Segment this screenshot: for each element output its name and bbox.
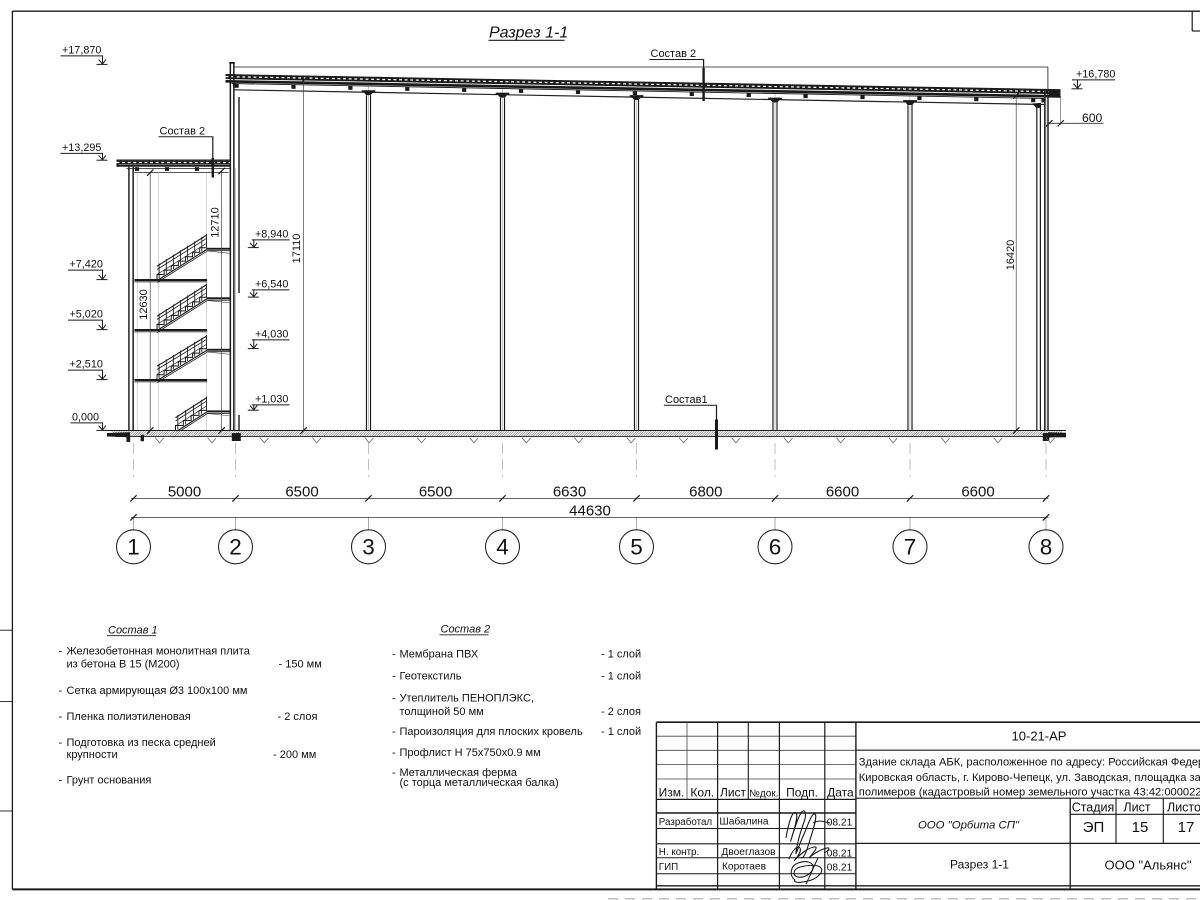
svg-text:- 1 слой: - 1 слой [601,726,641,738]
svg-text:0,000: 0,000 [72,411,99,423]
svg-text:Состав 1: Состав 1 [108,624,158,636]
svg-text:08.21: 08.21 [827,818,853,829]
svg-text:08.21: 08.21 [827,863,853,874]
svg-text:крупности: крупности [67,749,118,761]
svg-text:- 1 слой: - 1 слой [601,649,641,661]
svg-text:Геотекстиль: Геотекстиль [400,670,462,682]
svg-text:17110: 17110 [291,234,303,264]
svg-text:- 2 слоя: - 2 слоя [278,711,318,723]
svg-text:толщиной 50 мм: толщиной 50 мм [400,706,484,718]
svg-text:16420: 16420 [1005,240,1017,271]
svg-text:Стадия: Стадия [1072,801,1115,815]
svg-text:Н. контр.: Н. контр. [659,847,699,858]
svg-text:+16,780: +16,780 [1076,69,1115,81]
svg-text:4: 4 [496,534,509,559]
svg-text:Состав1: Состав1 [665,394,708,406]
svg-text:-: - [59,737,63,749]
svg-text:-: - [392,767,396,779]
svg-text:Железобетонная монолитная пли: Железобетонная монолитная плита [67,645,251,657]
svg-text:Шабалина: Шабалина [719,815,769,827]
svg-text:6500: 6500 [419,483,452,500]
svg-text:ООО "Альянс": ООО "Альянс" [1105,858,1192,873]
svg-text:-: - [392,726,396,738]
svg-text:7: 7 [904,534,917,559]
svg-text:Лист: Лист [720,785,747,799]
svg-text:- 200 мм: - 200 мм [273,749,316,761]
svg-text:-: - [392,649,396,661]
svg-text:+7,420: +7,420 [70,259,103,271]
svg-text:Кировская область, г. Кирово-Ч: Кировская область, г. Кирово-Чепецк, ул.… [859,772,1200,784]
svg-text:- 1 слой: - 1 слой [601,670,641,682]
svg-text:- 2 слоя: - 2 слоя [601,706,641,718]
svg-text:44630: 44630 [569,503,611,520]
svg-text:-: - [392,692,396,704]
svg-text:6: 6 [769,534,782,559]
svg-text:Утеплитель ПЕНОПЛЭКС,: Утеплитель ПЕНОПЛЭКС, [400,692,534,704]
svg-text:полимеров (кадастровый номер з: полимеров (кадастровый номер земельного … [859,787,1200,799]
svg-text:5: 5 [630,534,643,559]
svg-text:-: - [59,645,63,657]
svg-text:6500: 6500 [285,483,318,500]
svg-text:Состав 2: Состав 2 [441,623,491,635]
svg-text:ЭП: ЭП [1083,819,1105,836]
svg-text:6630: 6630 [553,483,586,500]
svg-text:Подп.: Подп. [786,785,818,799]
svg-text:Лист: Лист [1123,801,1150,815]
svg-text:6800: 6800 [689,483,722,500]
svg-text:Пароизоляция для плоских крове: Пароизоляция для плоских кровель [400,726,583,738]
svg-text:Разработал: Разработал [659,817,713,828]
svg-text:1: 1 [127,534,140,559]
svg-text:+17,870: +17,870 [62,44,101,56]
svg-text:+13,295: +13,295 [62,142,101,154]
svg-text:Грунт основания: Грунт основания [67,775,152,787]
svg-text:Листов: Листов [1167,801,1200,815]
svg-text:Кол.: Кол. [690,785,714,799]
svg-text:Сетка армирующая Ø3 100х100 мм: Сетка армирующая Ø3 100х100 мм [67,685,248,697]
svg-text:Профлист Н 75х750х0.9 мм: Профлист Н 75х750х0.9 мм [400,747,541,759]
svg-text:+4,030: +4,030 [255,328,288,340]
svg-text:5000: 5000 [168,483,201,500]
svg-text:-: - [392,670,396,682]
svg-text:Мембрана ПВХ: Мембрана ПВХ [400,649,479,661]
svg-text:-: - [59,775,63,787]
svg-text:Разрез 1-1: Разрез 1-1 [489,25,568,42]
svg-text:08.21: 08.21 [827,849,853,860]
svg-text:Коротаев: Коротаев [722,862,766,873]
svg-text:-: - [59,685,63,697]
svg-text:Изм.: Изм. [659,785,685,799]
svg-text:12630: 12630 [138,289,150,320]
svg-text:6600: 6600 [961,483,994,500]
svg-text:Состав 2: Состав 2 [160,125,206,137]
svg-text:-: - [392,747,396,759]
svg-text:17: 17 [1178,819,1195,836]
svg-text:№док.: №док. [749,788,778,799]
svg-text:ООО "Орбита СП": ООО "Орбита СП" [918,820,1020,832]
svg-text:2: 2 [229,534,242,559]
svg-text:+6,540: +6,540 [255,278,288,290]
svg-text:8: 8 [1040,534,1053,559]
svg-text:из бетона В 15 (М200): из бетона В 15 (М200) [67,658,180,670]
svg-text:12710: 12710 [209,207,221,238]
svg-text:ГИП: ГИП [659,862,678,873]
svg-text:Пленка полиэтиленовая: Пленка полиэтиленовая [67,711,191,723]
svg-text:6600: 6600 [826,483,859,500]
svg-text:-: - [59,711,63,723]
svg-text:+1,030: +1,030 [255,393,288,405]
svg-text:(с торца металлическая балка): (с торца металлическая балка) [400,777,559,789]
svg-text:Состав 2: Состав 2 [651,48,697,60]
svg-text:+8,940: +8,940 [255,228,288,240]
svg-text:600: 600 [1082,111,1103,125]
svg-text:+2,510: +2,510 [70,359,103,371]
svg-text:15: 15 [1132,819,1149,836]
svg-text:Здание склада АБК, расположенн: Здание склада АБК, расположенное по адре… [859,757,1200,769]
svg-text:Двоеглазов: Двоеглазов [721,847,775,858]
svg-text:10-21-АР: 10-21-АР [1012,729,1067,744]
svg-text:- 150 мм: - 150 мм [279,658,322,670]
svg-text:+5,020: +5,020 [70,309,103,321]
svg-text:Подготовка из песка средней: Подготовка из песка средней [67,737,216,749]
svg-text:3: 3 [362,534,375,559]
svg-text:Дата: Дата [827,785,854,799]
svg-text:Разрез 1-1: Разрез 1-1 [950,857,1009,871]
